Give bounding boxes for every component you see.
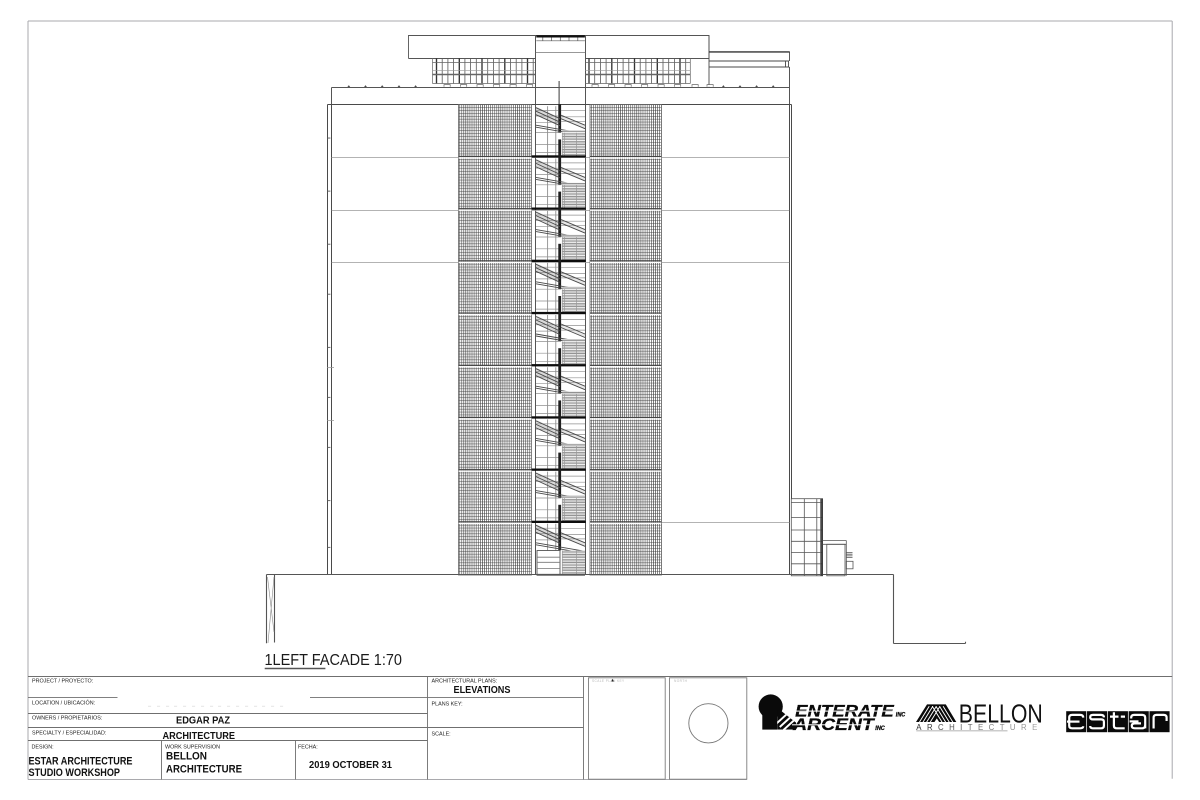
svg-text:DESIGN:: DESIGN:: [32, 745, 54, 751]
svg-text:BELLON: BELLON: [166, 751, 207, 763]
svg-text:SCALE PLAN KEY: SCALE PLAN KEY: [592, 679, 625, 683]
svg-text:1LEFT FACADE 1:70: 1LEFT FACADE 1:70: [265, 652, 403, 669]
svg-text:INC: INC: [896, 712, 906, 718]
svg-text:EDGAR PAZ: EDGAR PAZ: [176, 715, 231, 727]
svg-text:STUDIO WORKSHOP: STUDIO WORKSHOP: [29, 767, 121, 779]
svg-text:ESTAR ARCHITECTURE: ESTAR ARCHITECTURE: [29, 756, 133, 768]
svg-text:FECHA:: FECHA:: [298, 745, 318, 751]
svg-text:ARCHITECTURE: ARCHITECTURE: [166, 764, 242, 776]
svg-text:2019 OCTOBER 31: 2019 OCTOBER 31: [309, 759, 392, 771]
svg-text:ARCHITECTURE: ARCHITECTURE: [163, 730, 236, 742]
svg-text:INC: INC: [875, 726, 885, 732]
svg-text:PLANS KEY:: PLANS KEY:: [432, 702, 463, 708]
svg-text:PROJECT / PROYECTO:: PROJECT / PROYECTO:: [32, 679, 93, 685]
svg-text:ELEVATIONS: ELEVATIONS: [454, 684, 511, 696]
svg-text:SCALE:: SCALE:: [432, 732, 451, 738]
svg-text:OWNERS / PROPIETARIOS:: OWNERS / PROPIETARIOS:: [32, 716, 102, 722]
svg-text:SPECIALTY / ESPECIALIDAD:: SPECIALTY / ESPECIALIDAD:: [32, 731, 106, 737]
svg-text:LOCATION / UBICACIÓN:: LOCATION / UBICACIÓN:: [32, 700, 95, 707]
svg-text:NORTH: NORTH: [674, 679, 688, 683]
